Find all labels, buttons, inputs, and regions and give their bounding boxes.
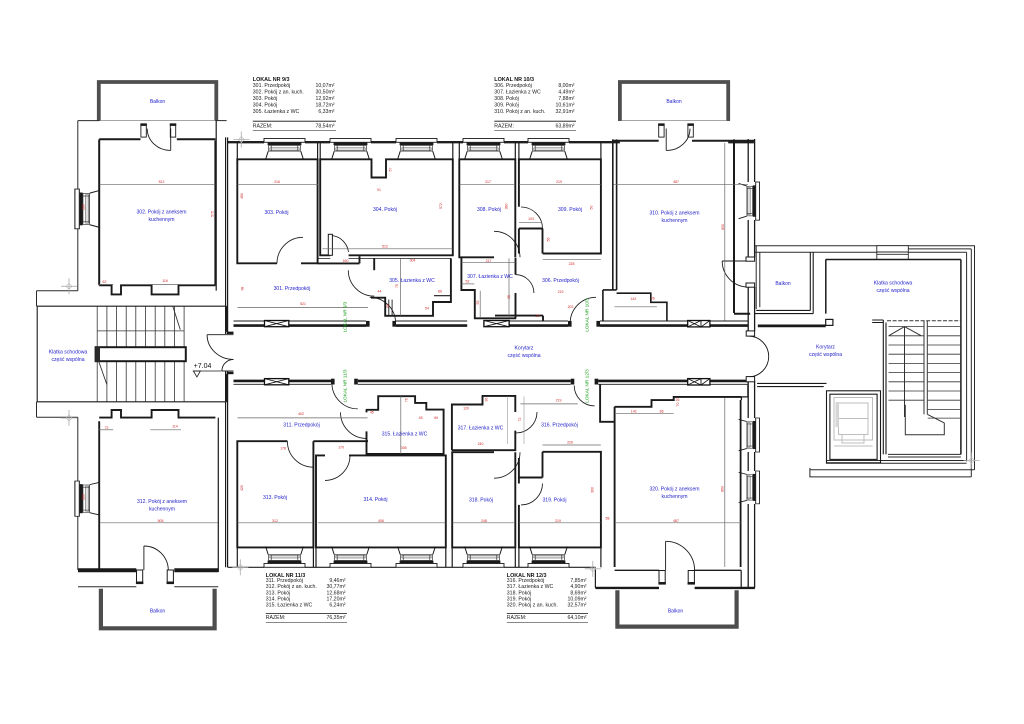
svg-text:78,54m²: 78,54m² — [315, 124, 334, 130]
svg-text:Korytarz: Korytarz — [816, 345, 835, 351]
svg-text:LOKAL NR 12/3: LOKAL NR 12/3 — [585, 369, 590, 403]
svg-text:72: 72 — [518, 418, 522, 422]
svg-text:45: 45 — [419, 416, 423, 420]
svg-text:420: 420 — [240, 485, 244, 491]
svg-text:Korytarz: Korytarz — [515, 345, 534, 351]
svg-text:44: 44 — [378, 289, 382, 293]
svg-text:32,91m²: 32,91m² — [555, 109, 574, 115]
svg-text:70: 70 — [676, 403, 680, 407]
svg-text:307. Łazienka z WC: 307. Łazienka z WC — [467, 274, 513, 280]
svg-text:52: 52 — [466, 280, 470, 284]
svg-text:10,07m²: 10,07m² — [315, 83, 334, 89]
svg-text:280: 280 — [82, 494, 86, 500]
svg-text:308. Pokój: 308. Pokój — [477, 207, 501, 213]
svg-text:302. Pokój z aneksem: 302. Pokój z aneksem — [136, 210, 186, 216]
svg-text:120: 120 — [463, 407, 469, 411]
svg-text:98: 98 — [241, 287, 245, 291]
svg-text:312. Pokój z aneksem: 312. Pokój z aneksem — [137, 499, 187, 505]
svg-text:303. Pokój: 303. Pokój — [253, 96, 278, 102]
svg-text:12,68m²: 12,68m² — [326, 590, 345, 596]
svg-text:319. Pokój: 319. Pokój — [507, 597, 532, 603]
svg-text:302. Pokój z an. kuch.: 302. Pokój z an. kuch. — [253, 89, 304, 95]
svg-text:280: 280 — [82, 204, 86, 210]
svg-text:8,00m²: 8,00m² — [558, 83, 574, 89]
svg-text:76: 76 — [405, 398, 409, 402]
svg-text:316. Przedpokój: 316. Przedpokój — [507, 578, 545, 584]
svg-text:RAZEM:: RAZEM: — [253, 124, 273, 130]
svg-text:Balkon: Balkon — [668, 609, 684, 615]
svg-text:305. Łazienka z WC: 305. Łazienka z WC — [389, 278, 435, 284]
svg-text:kuchennym: kuchennym — [661, 218, 687, 224]
svg-text:318. Pokój: 318. Pokój — [507, 590, 532, 596]
svg-text:76,35m²: 76,35m² — [326, 615, 345, 621]
svg-text:część wspólna: część wspólna — [507, 353, 540, 359]
svg-text:310. Pokój z aneksem: 310. Pokój z aneksem — [649, 211, 699, 217]
svg-text:487: 487 — [673, 519, 679, 523]
svg-text:56: 56 — [547, 238, 551, 242]
svg-text:310. Pokój z an. kuch.: 310. Pokój z an. kuch. — [494, 109, 545, 115]
svg-text:6,33m²: 6,33m² — [318, 109, 334, 115]
svg-text:311. Przedpokój: 311. Przedpokój — [266, 578, 303, 584]
svg-text:29: 29 — [536, 314, 540, 318]
svg-text:406: 406 — [378, 519, 384, 523]
svg-text:316. Przedpokój: 316. Przedpokój — [541, 422, 578, 428]
svg-text:315. Łazienka z WC: 315. Łazienka z WC — [266, 603, 313, 609]
svg-text:RAZEM:: RAZEM: — [507, 615, 527, 621]
svg-text:LOKAL NR 11/3: LOKAL NR 11/3 — [343, 369, 348, 402]
svg-text:304. Pokój: 304. Pokój — [253, 102, 278, 108]
svg-text:64,10m²: 64,10m² — [567, 615, 586, 621]
svg-text:480: 480 — [240, 193, 244, 199]
svg-text:248: 248 — [481, 519, 487, 523]
svg-text:216: 216 — [274, 180, 280, 184]
svg-text:69: 69 — [434, 416, 438, 420]
svg-text:7,85m²: 7,85m² — [570, 578, 586, 584]
svg-text:4,90m²: 4,90m² — [570, 584, 586, 590]
svg-text:240: 240 — [478, 442, 484, 446]
svg-text:RAZEM:: RAZEM: — [266, 615, 286, 621]
svg-text:18,72m²: 18,72m² — [315, 102, 334, 108]
svg-text:301. Przedpokój: 301. Przedpokój — [253, 83, 290, 89]
svg-text:LOKAL NR 10/3: LOKAL NR 10/3 — [585, 298, 590, 332]
svg-text:60: 60 — [386, 304, 390, 308]
svg-text:Klatka schodowa: Klatka schodowa — [49, 350, 88, 356]
svg-text:219: 219 — [556, 399, 562, 403]
svg-text:9,46m²: 9,46m² — [329, 578, 345, 584]
svg-text:301. Przedpokój: 301. Przedpokój — [274, 286, 311, 292]
svg-text:160: 160 — [343, 259, 349, 263]
svg-text:4,49m²: 4,49m² — [558, 89, 574, 95]
svg-text:8,69m²: 8,69m² — [570, 590, 586, 596]
svg-text:306. Przedpokój: 306. Przedpokój — [542, 278, 579, 284]
svg-text:178: 178 — [280, 447, 286, 451]
svg-text:kuchennym: kuchennym — [661, 494, 687, 500]
svg-text:+7.04: +7.04 — [194, 363, 212, 370]
svg-text:202: 202 — [568, 305, 574, 309]
svg-text:312. Pokój z an. kuch.: 312. Pokój z an. kuch. — [266, 584, 317, 590]
svg-text:część wspólna: część wspólna — [51, 357, 84, 363]
svg-text:305: 305 — [401, 446, 407, 450]
svg-text:część wspólna: część wspólna — [876, 288, 909, 294]
svg-text:RAZEM:: RAZEM: — [494, 124, 514, 130]
svg-text:217: 217 — [486, 259, 492, 263]
svg-text:219: 219 — [555, 519, 561, 523]
svg-text:850: 850 — [721, 224, 725, 230]
svg-text:Balkon: Balkon — [775, 281, 791, 287]
svg-text:217: 217 — [485, 180, 491, 184]
svg-text:kuchennym: kuchennym — [149, 507, 175, 513]
svg-text:75: 75 — [395, 284, 399, 288]
svg-text:308. Pokój: 308. Pokój — [494, 96, 519, 102]
svg-text:86: 86 — [438, 289, 442, 293]
svg-text:512: 512 — [382, 245, 388, 249]
svg-text:część wspólna: część wspólna — [809, 352, 842, 358]
svg-text:313. Pokój: 313. Pokój — [263, 495, 287, 501]
svg-text:30,77m²: 30,77m² — [326, 584, 345, 590]
svg-text:315. Łazienka z WC: 315. Łazienka z WC — [382, 431, 428, 437]
svg-text:91: 91 — [377, 188, 381, 192]
svg-text:228: 228 — [569, 262, 575, 266]
svg-text:Balkon: Balkon — [150, 609, 166, 615]
svg-text:317. Łazienka z WC: 317. Łazienka z WC — [458, 425, 504, 431]
svg-text:313. Pokój: 313. Pokój — [266, 590, 291, 596]
svg-text:58: 58 — [606, 516, 610, 520]
svg-text:Klatka schodowa: Klatka schodowa — [874, 280, 913, 286]
svg-text:26: 26 — [676, 398, 680, 402]
svg-text:12,92m²: 12,92m² — [315, 96, 334, 102]
svg-text:170: 170 — [338, 446, 344, 450]
svg-text:10,09m²: 10,09m² — [567, 597, 586, 603]
svg-text:142: 142 — [631, 409, 637, 413]
svg-text:226: 226 — [567, 441, 573, 445]
svg-text:114: 114 — [172, 424, 178, 428]
svg-text:26: 26 — [651, 297, 655, 301]
svg-text:219: 219 — [558, 290, 564, 294]
svg-text:305. Łazienka z WC: 305. Łazienka z WC — [253, 109, 300, 115]
svg-text:219: 219 — [556, 180, 562, 184]
svg-text:17,20m²: 17,20m² — [326, 597, 345, 603]
svg-text:32,57m²: 32,57m² — [567, 603, 586, 609]
svg-text:314. Pokój: 314. Pokój — [266, 597, 291, 603]
svg-text:309. Pokój: 309. Pokój — [558, 207, 582, 213]
svg-text:402: 402 — [298, 412, 304, 416]
svg-text:63,89m²: 63,89m² — [555, 124, 574, 130]
svg-text:311. Przedpokój: 311. Przedpokój — [283, 422, 319, 428]
svg-text:45: 45 — [370, 411, 374, 415]
svg-text:304. Pokój: 304. Pokój — [373, 207, 397, 213]
svg-text:86: 86 — [660, 409, 664, 413]
svg-text:kuchennym: kuchennym — [148, 217, 174, 223]
svg-text:380: 380 — [505, 204, 509, 210]
svg-text:521: 521 — [300, 302, 306, 306]
svg-text:312: 312 — [272, 519, 278, 523]
svg-text:54: 54 — [425, 307, 429, 311]
svg-text:116: 116 — [162, 279, 168, 283]
svg-text:6,24m²: 6,24m² — [329, 603, 345, 609]
svg-text:320. Pokój z aneksem: 320. Pokój z aneksem — [649, 487, 699, 493]
svg-text:320. Pokój z an. kuch.: 320. Pokój z an. kuch. — [507, 603, 558, 609]
svg-text:62: 62 — [103, 280, 107, 284]
svg-text:36: 36 — [485, 398, 489, 402]
svg-text:142: 142 — [630, 297, 636, 301]
svg-text:306. Przedpokój: 306. Przedpokój — [494, 83, 532, 89]
svg-text:304: 304 — [410, 259, 416, 263]
svg-text:LOKAL NR 9/3: LOKAL NR 9/3 — [343, 301, 348, 332]
svg-text:487: 487 — [673, 180, 679, 184]
svg-text:575: 575 — [211, 211, 215, 217]
svg-text:30,50m²: 30,50m² — [315, 89, 334, 95]
svg-text:35: 35 — [507, 295, 511, 299]
svg-text:303. Pokój: 303. Pokój — [264, 210, 288, 216]
svg-text:7,88m²: 7,88m² — [558, 96, 574, 102]
svg-text:314. Pokój: 314. Pokój — [363, 497, 387, 503]
svg-text:572: 572 — [439, 203, 443, 209]
svg-text:512: 512 — [159, 180, 165, 184]
svg-text:50: 50 — [590, 206, 594, 210]
svg-text:360: 360 — [591, 487, 595, 493]
svg-text:55: 55 — [476, 301, 480, 305]
svg-text:860: 860 — [721, 486, 725, 492]
svg-text:307. Łazienka z WC: 307. Łazienka z WC — [494, 89, 541, 95]
svg-text:317. Łazienka z WC: 317. Łazienka z WC — [507, 584, 554, 590]
svg-text:57: 57 — [389, 168, 393, 172]
svg-text:319. Pokój: 319. Pokój — [542, 497, 566, 503]
svg-text:10,61m²: 10,61m² — [555, 102, 574, 108]
svg-text:Balkon: Balkon — [150, 99, 166, 105]
svg-text:309. Pokój: 309. Pokój — [494, 102, 519, 108]
svg-text:103: 103 — [528, 217, 534, 221]
svg-text:318. Pokój: 318. Pokój — [469, 497, 493, 503]
svg-text:72: 72 — [105, 426, 109, 430]
svg-text:Balkon: Balkon — [666, 99, 682, 105]
svg-text:505: 505 — [158, 519, 164, 523]
